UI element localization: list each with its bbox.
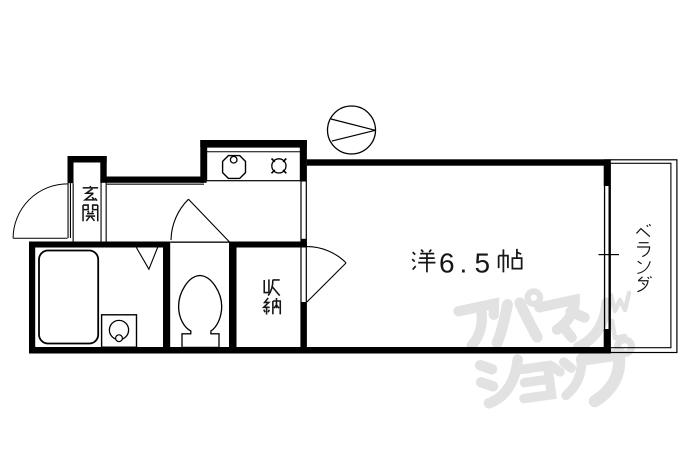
svg-text:5: 5	[475, 248, 491, 279]
svg-text:6: 6	[439, 248, 455, 279]
svg-text:.: .	[460, 248, 468, 279]
